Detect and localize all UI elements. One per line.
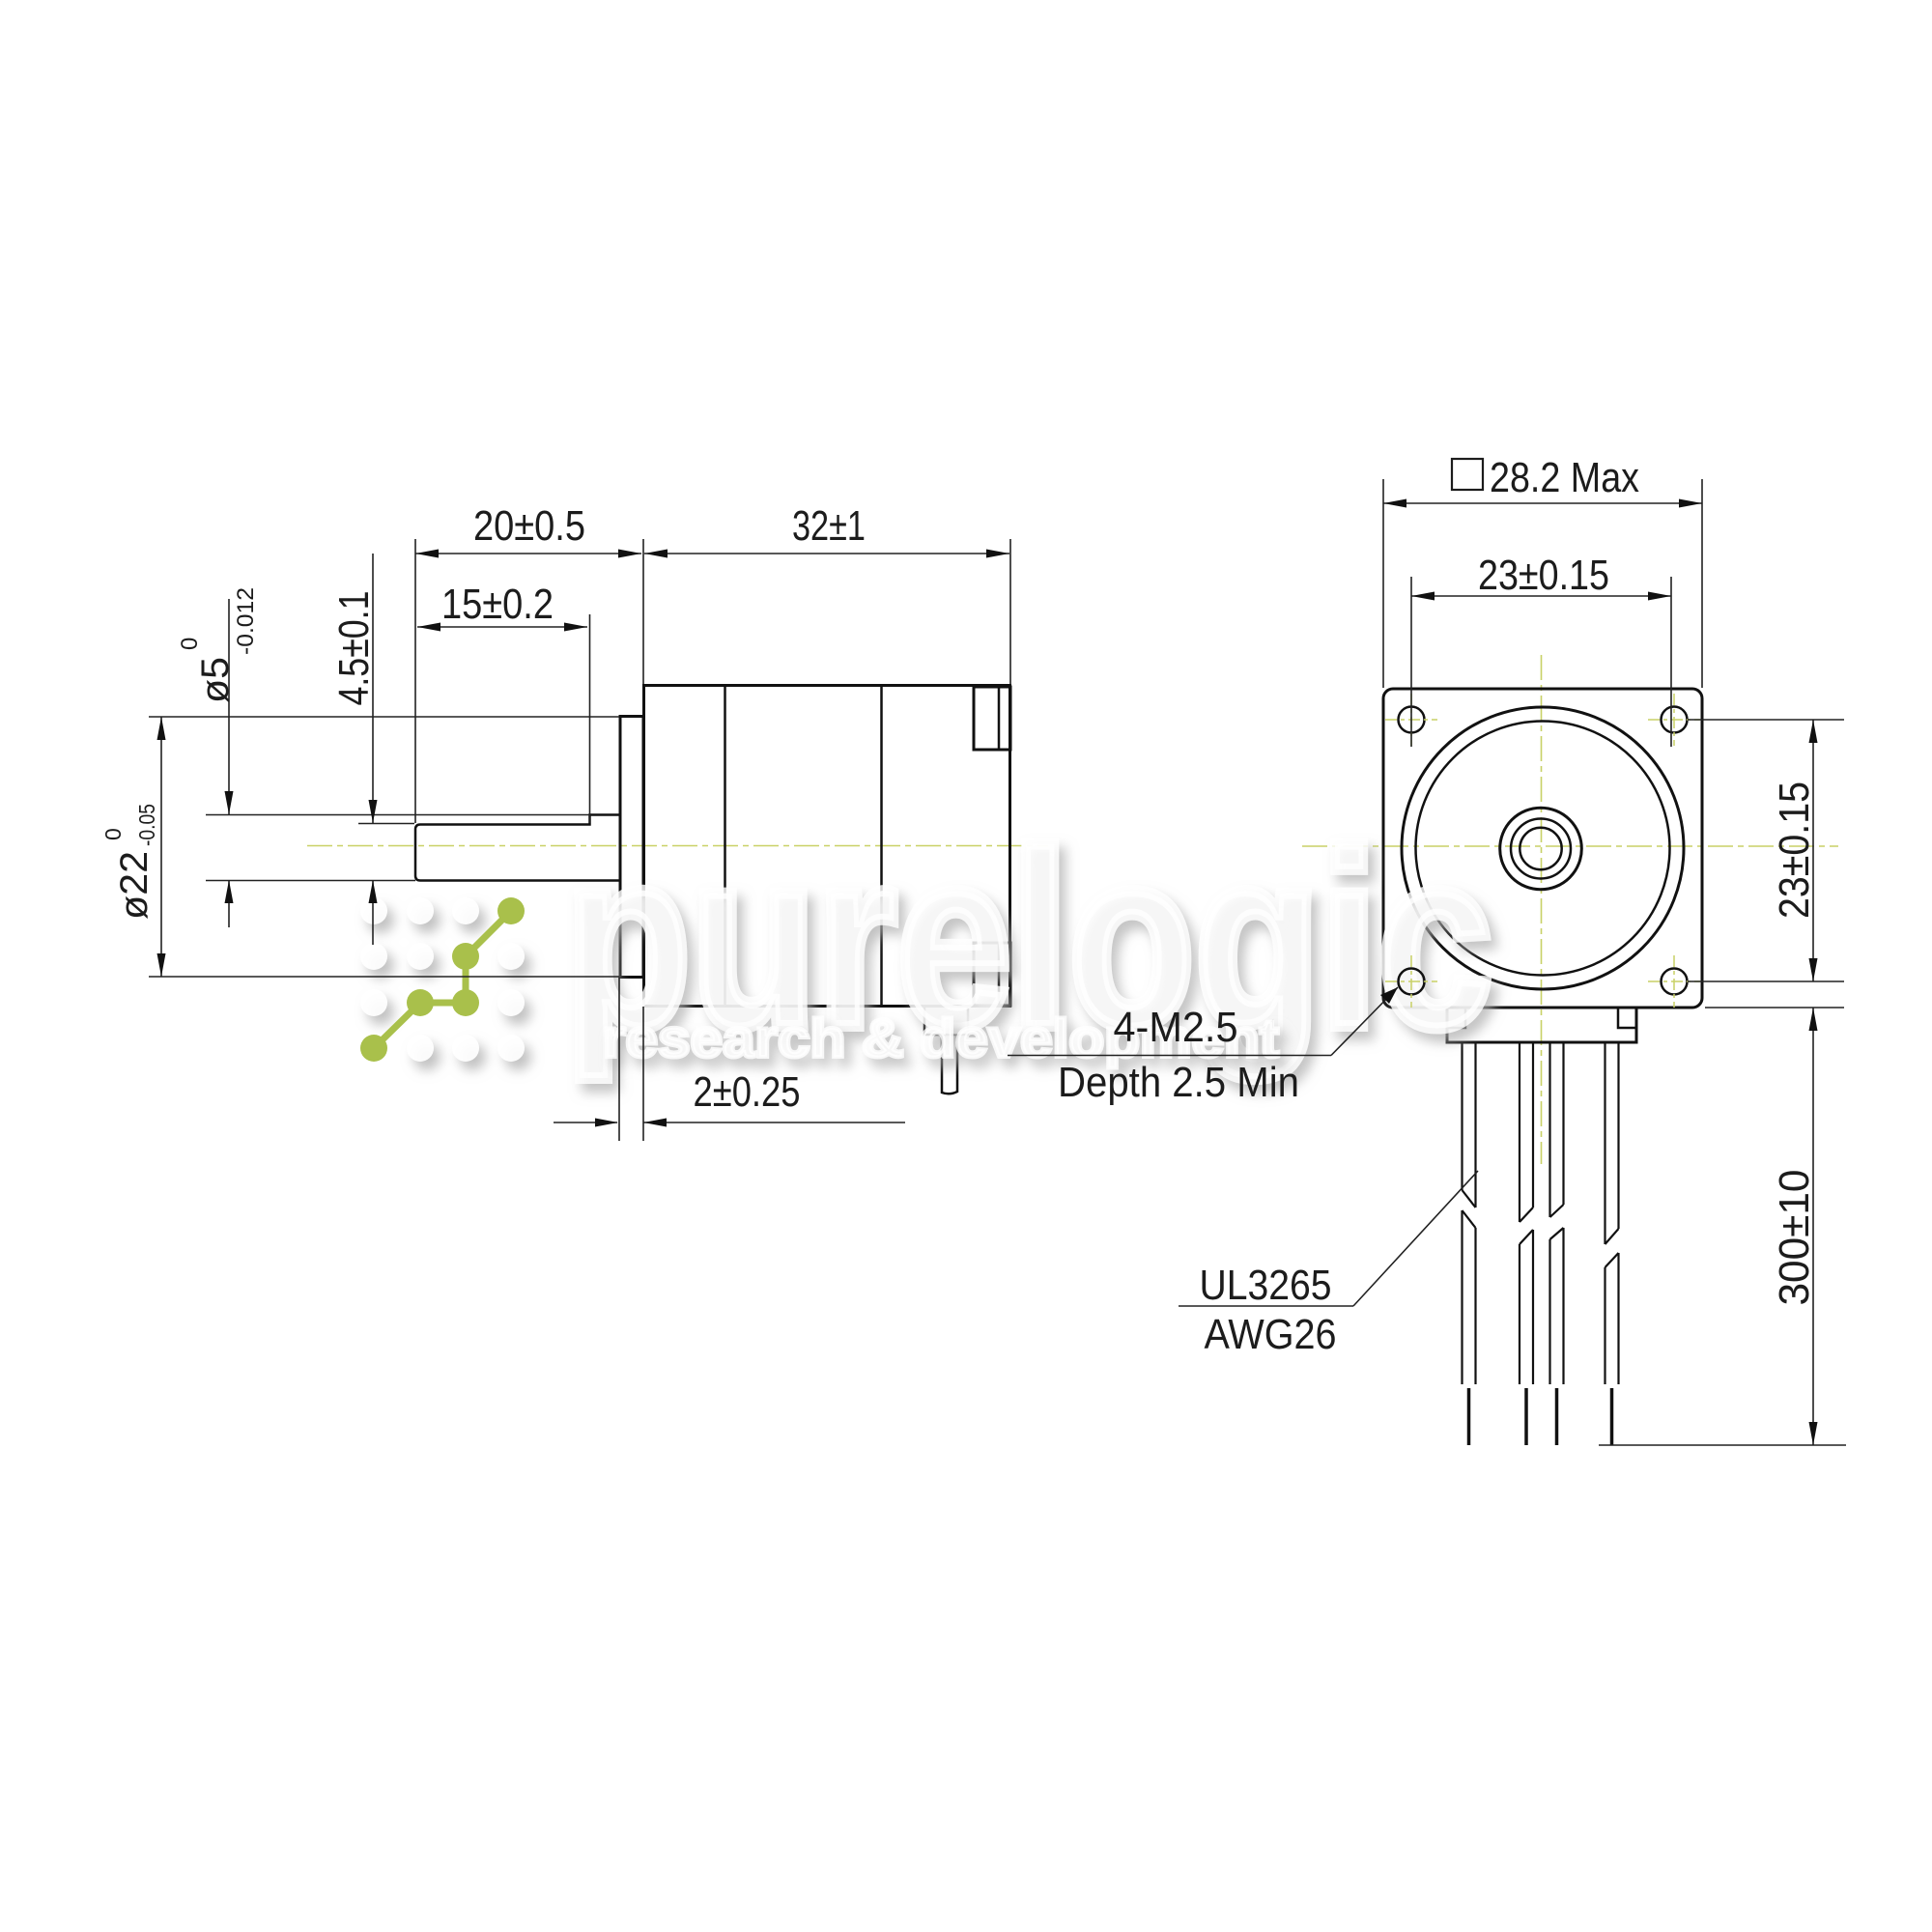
svg-text:0: 0 [177,638,203,650]
svg-text:23±0.15: 23±0.15 [1771,781,1818,919]
svg-text:23±0.15: 23±0.15 [1478,552,1609,599]
svg-text:ø22: ø22 [113,851,156,920]
svg-text:300±10: 300±10 [1771,1170,1818,1306]
svg-text:ø5: ø5 [194,657,237,703]
svg-text:4.5±0.1: 4.5±0.1 [330,591,378,706]
svg-text:4-M2.5: 4-M2.5 [1114,1004,1238,1051]
svg-text:Depth 2.5 Min: Depth 2.5 Min [1058,1059,1299,1106]
svg-text:AWG26: AWG26 [1205,1311,1337,1358]
svg-text:0: 0 [100,828,126,840]
svg-text:-0.012: -0.012 [233,587,259,655]
svg-text:2±0.25: 2±0.25 [694,1068,801,1116]
svg-text:32±1: 32±1 [792,502,866,550]
svg-text:20±0.5: 20±0.5 [473,502,585,550]
svg-text:-0.05: -0.05 [134,804,159,846]
svg-text:28.2 Max: 28.2 Max [1490,454,1639,501]
svg-text:15±0.2: 15±0.2 [441,581,554,628]
svg-text:UL3265: UL3265 [1200,1262,1332,1309]
